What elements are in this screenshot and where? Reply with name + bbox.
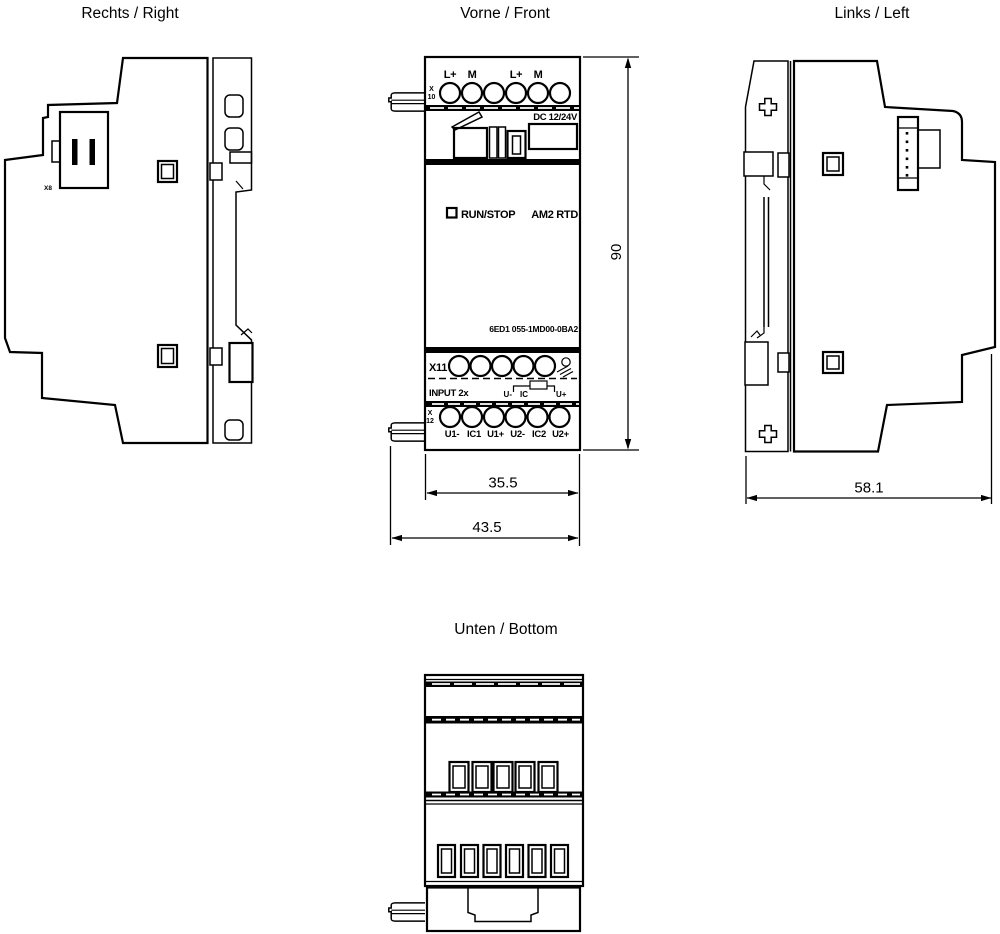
terminal-label: U2- <box>510 429 525 440</box>
dimension-depth: 58.1 <box>746 354 992 504</box>
terminal-block <box>516 762 535 792</box>
terminal-circle <box>514 356 534 376</box>
connector-slot <box>90 139 96 165</box>
view-title-right: Rechts / Right <box>81 5 179 22</box>
expansion-plug-bottom <box>389 423 425 441</box>
window-inner <box>827 356 839 369</box>
flap-bar <box>490 127 498 158</box>
dimension-height-90: 90 <box>583 57 639 450</box>
module-name: AM2 RTD <box>531 209 578 221</box>
arrowhead <box>392 535 403 541</box>
dimension-body-width: 35.5 <box>426 454 580 546</box>
terminal-label: IC2 <box>532 429 546 440</box>
terminal-block <box>461 845 478 877</box>
view-title-bottom: Unten / Bottom <box>454 621 557 638</box>
input-caption: INPUT 2x <box>429 388 469 399</box>
connector-slot <box>72 139 78 165</box>
view-title-front: Vorne / Front <box>460 5 550 22</box>
supply-box <box>529 124 577 149</box>
terminal-circle <box>528 83 548 103</box>
terminal-circle <box>449 356 469 376</box>
terminal-block <box>484 845 501 877</box>
separator-band <box>426 159 579 165</box>
bottom-din-latch <box>427 888 580 932</box>
view-right-side: X8 <box>5 58 253 443</box>
connector-id-x12: X <box>428 410 433 417</box>
rail-tab <box>744 152 773 176</box>
terminal-circle <box>440 83 460 103</box>
socket-pin <box>906 141 909 144</box>
sensor-schematic: U- IC U+ <box>504 381 567 399</box>
socket-pin <box>906 174 909 177</box>
rail-block <box>745 342 768 385</box>
connector-id-x12: 12 <box>426 418 434 425</box>
connector-id-x11: X11 <box>429 362 447 374</box>
arrowhead <box>625 439 631 450</box>
shield-hatch <box>557 366 573 377</box>
connector-x8-label: X8 <box>44 185 52 192</box>
terminal-circle <box>528 407 548 427</box>
terminal-label: U1- <box>445 429 460 440</box>
socket-step <box>918 130 940 168</box>
rail-tab <box>778 153 789 177</box>
flap-body <box>454 128 487 158</box>
dimension-value-depth: 58.1 <box>854 480 883 497</box>
run-stop-label: RUN/STOP <box>461 209 515 221</box>
left-body-outline <box>794 61 995 452</box>
left-latch-window-bottom <box>823 352 843 373</box>
terminal-block <box>506 845 523 877</box>
connector-id-x10: X <box>429 86 434 93</box>
rail-tab <box>778 353 789 372</box>
rail-hook <box>764 176 770 190</box>
terminal-circle <box>550 83 570 103</box>
view-title-left: Links / Left <box>835 5 911 22</box>
left-expansion-socket <box>898 117 940 190</box>
socket-pin <box>906 149 909 152</box>
front-cover-flap: DC 12/24V <box>452 112 578 158</box>
flap-bar <box>499 127 506 158</box>
window-inner <box>162 349 174 364</box>
supply-voltage-label: DC 12/24V <box>533 112 578 123</box>
terminal-block <box>494 762 513 792</box>
terminal-label: L+ <box>444 69 457 81</box>
dimension-value-overall-width: 43.5 <box>472 519 501 536</box>
terminal-label: M <box>468 69 477 81</box>
front-terminal-row-x10: L+ M L+ M X 10 <box>428 69 570 103</box>
rail-hook <box>236 181 243 189</box>
schematic-label-u-minus: U- <box>504 390 513 399</box>
schematic-label-u-plus: U+ <box>556 390 567 399</box>
expansion-plug-top <box>389 93 425 111</box>
rail-hole <box>225 95 243 117</box>
mounting-cross <box>760 99 777 116</box>
left-latch-window-top <box>823 153 843 175</box>
shield-circle <box>562 358 570 366</box>
terminal-circle <box>535 356 555 376</box>
socket-pin <box>906 132 909 135</box>
terminal-circle <box>550 407 570 427</box>
terminal-label: IC1 <box>467 429 482 440</box>
front-status-row: RUN/STOP AM2 RTD <box>447 208 578 221</box>
front-terminal-row-x12: X 12 U1- IC1 U1+ U2- IC2 U2+ <box>426 407 570 440</box>
terminal-circle <box>484 407 504 427</box>
socket-pin <box>906 158 909 161</box>
rail-plate-outline <box>213 58 252 443</box>
view-front: L+ M L+ M X 10 DC 12/24V RUN <box>389 57 580 450</box>
run-stop-led <box>447 208 457 218</box>
rail-tab <box>210 348 222 365</box>
terminal-label: L+ <box>510 69 523 81</box>
expansion-plug-bottom-view <box>389 903 425 921</box>
mounting-cross <box>760 426 777 443</box>
terminal-block <box>529 845 546 877</box>
part-number: 6ED1 055-1MD00-0BA2 <box>489 324 578 334</box>
terminal-circle <box>506 83 526 103</box>
rail-plate-outline <box>746 61 789 452</box>
flap-latch-slot <box>513 136 521 154</box>
separator-band <box>426 347 579 353</box>
terminal-block <box>473 762 492 792</box>
schematic-wire <box>547 386 555 392</box>
arrowhead <box>568 490 579 496</box>
socket-pin <box>906 166 909 169</box>
terminal-circle <box>462 83 482 103</box>
dimension-value-body-width: 35.5 <box>488 475 517 492</box>
window-outer <box>823 352 843 373</box>
terminal-label: U2+ <box>552 429 570 440</box>
arrowhead <box>981 495 992 501</box>
schematic-resistor <box>530 381 547 389</box>
rail-block <box>230 343 253 382</box>
module-dimensional-drawing: Rechts / Right Vorne / Front Links / Lef… <box>0 0 1000 934</box>
terminal-block <box>551 845 568 877</box>
bottom-terminal-block-row-x11 <box>450 762 558 792</box>
right-latch-window-top <box>158 161 177 182</box>
right-body-outline <box>5 58 208 443</box>
arrowhead <box>747 495 758 501</box>
window-inner <box>827 157 839 171</box>
view-bottom <box>389 675 583 931</box>
terminal-circle <box>484 83 504 103</box>
right-din-rail-plate <box>210 58 253 443</box>
terminal-circle <box>492 356 512 376</box>
terminal-label: U1+ <box>487 429 505 440</box>
dimension-overall-width: 43.5 <box>391 446 579 545</box>
left-din-rail-plate <box>744 61 789 452</box>
terminal-circle <box>462 407 482 427</box>
view-left-side <box>744 61 995 452</box>
right-connector-x8: X8 <box>44 112 108 192</box>
window-inner <box>162 165 174 179</box>
front-terminal-row-x11: X11 INPUT 2x U- IC U+ <box>428 356 577 399</box>
rail-tab <box>210 163 222 180</box>
bottom-terminal-block-row-x12 <box>438 845 568 877</box>
terminal-circle <box>506 407 526 427</box>
latch-base <box>427 888 580 932</box>
terminal-block <box>450 762 469 792</box>
dimension-value-height: 90 <box>608 244 625 261</box>
terminal-circle <box>440 407 460 427</box>
connector-tab <box>52 141 60 162</box>
rail-slot <box>230 152 252 163</box>
plug-outline <box>389 423 425 441</box>
right-latch-window-bottom <box>158 345 177 367</box>
connector-housing <box>60 112 108 188</box>
rail-hole <box>225 128 243 150</box>
terminal-circle <box>471 356 491 376</box>
plug-outline <box>389 93 425 111</box>
terminal-label: M <box>534 69 543 81</box>
rail-hole <box>225 420 243 440</box>
arrowhead <box>568 535 579 541</box>
plug-outline <box>389 903 425 921</box>
shield-clamp-icon <box>557 358 573 377</box>
terminal-block <box>539 762 558 792</box>
arrowhead <box>625 58 631 69</box>
schematic-label-ic: IC <box>520 390 528 399</box>
connector-id-x10: 10 <box>428 94 436 101</box>
arrowhead <box>427 490 438 496</box>
latch-slider <box>468 888 538 922</box>
rail-hook <box>751 327 764 338</box>
technical-drawing-page: Rechts / Right Vorne / Front Links / Lef… <box>0 0 1000 934</box>
terminal-block <box>438 845 455 877</box>
